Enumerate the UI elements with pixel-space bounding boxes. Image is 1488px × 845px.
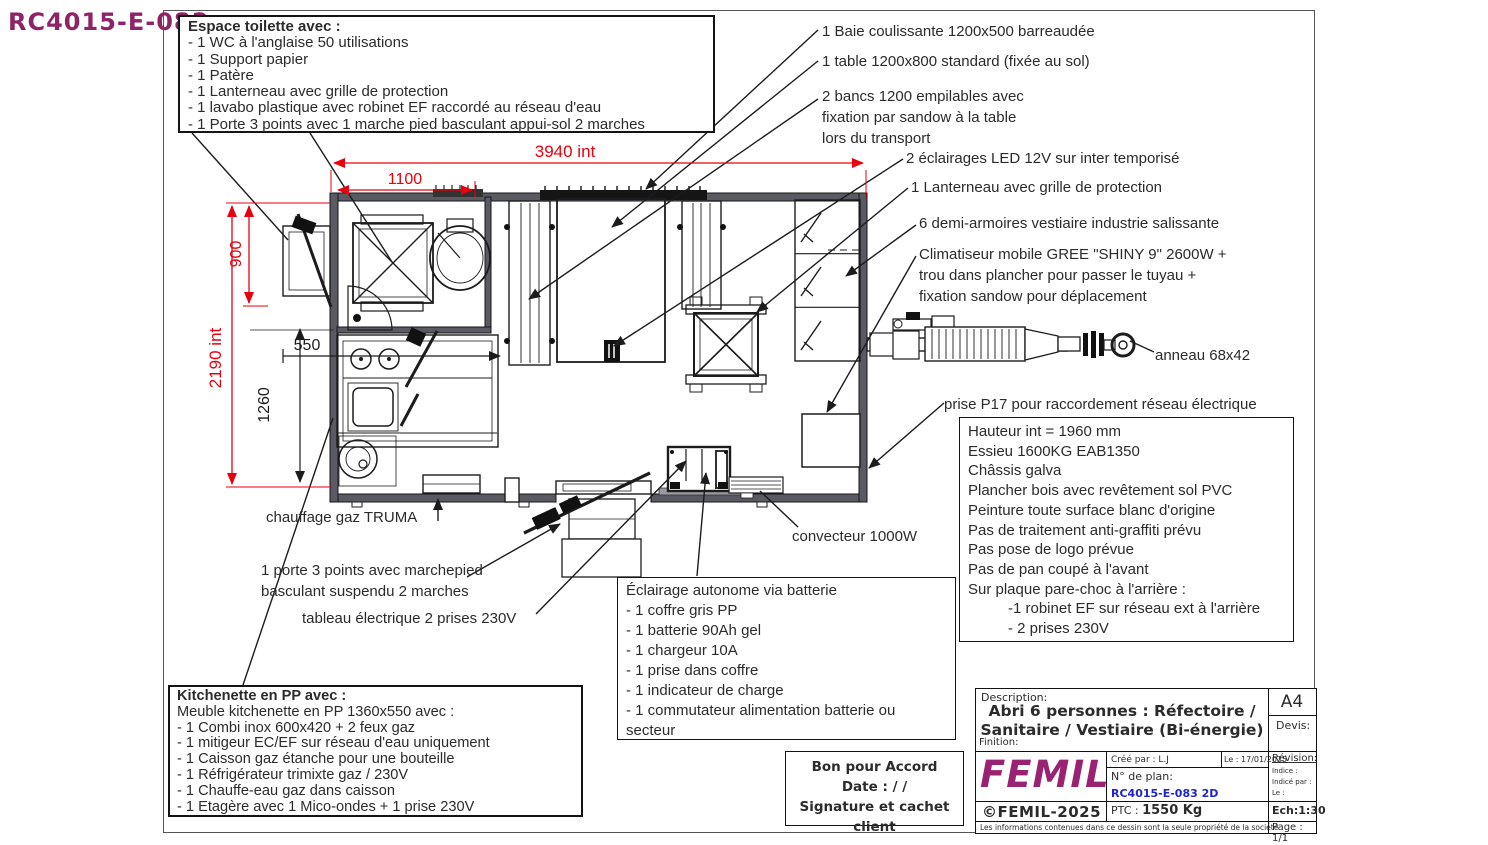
table [557, 199, 665, 362]
toilet-spec-box: Espace toilette avec : - 1 WC à l'anglai… [178, 15, 715, 133]
general-spec-box: Hauteur int = 1960 mm Essieu 1600KG EAB1… [959, 417, 1294, 642]
dim-overall-width: 3940 int [535, 142, 596, 161]
devis-label: Devis: [1276, 719, 1310, 732]
toilet-box-item: - 1 WC à l'anglaise 50 utilisations [188, 35, 705, 51]
callout-bancs: 2 bancs 1200 empilables avec fixation pa… [822, 86, 1024, 149]
ptc-label: PTC : [1111, 804, 1139, 817]
toilet-box-item: - 1 Lanterneau avec grille de protection [188, 84, 705, 100]
callout-lanterneau: 1 Lanterneau avec grille de protection [911, 177, 1162, 198]
dim-toilet-width: 1100 [388, 171, 423, 188]
lockers [795, 200, 860, 361]
kitchenette-box-item: - 1 Réfrigérateur trimixte gaz / 230V [177, 768, 574, 784]
spec-line: Pas de traitement anti-graffiti prévu [968, 521, 1293, 541]
dim-overall-depth: 2190 int [206, 327, 225, 388]
callout-eclairages: 2 éclairages LED 12V sur inter temporisé [906, 148, 1179, 169]
callout-tableau: tableau électrique 2 prises 230V [302, 608, 516, 629]
approval-title: Bon pour Accord [786, 757, 963, 777]
approval-box: Bon pour Accord Date : / / Signature et … [785, 751, 964, 826]
dimensions-black [250, 329, 500, 482]
toilet-box-item: - 1 lavabo plastique avec robinet EF rac… [188, 100, 705, 116]
toilet-box-item: - 1 Patère [188, 68, 705, 84]
spec-line: Hauteur int = 1960 mm [968, 422, 1293, 442]
callout-climatiseur: Climatiseur mobile GREE "SHINY 9" 2600W … [919, 244, 1227, 307]
dimension-labels-black: 550 1260 [256, 337, 320, 423]
dim-toilet-depth: 900 [228, 241, 245, 268]
approval-signature-line: Signature et cachet client [786, 797, 963, 837]
spec-line: Plancher bois avec revêtement sol PVC [968, 481, 1293, 501]
kitchenette-box-item: - 1 Combi inox 600x420 + 2 feux gaz [177, 721, 574, 737]
callout-anneau: anneau 68x42 [1155, 345, 1250, 366]
created-by: Créé par : L.J [1111, 755, 1169, 765]
spec-line: Pas pose de logo prévue [968, 540, 1293, 560]
callout-prise-p17: prise P17 pour raccordement réseau élect… [944, 394, 1257, 415]
dim-kitchen-depth: 550 [294, 337, 321, 354]
finition-label: Finition: [979, 737, 1018, 748]
kitchenette-box-item: - 1 Chauffe-eau gaz dans caisson [177, 784, 574, 800]
spec-line: Châssis galva [968, 461, 1293, 481]
description-text: Abri 6 personnes : Réfectoire / Sanitair… [976, 702, 1268, 740]
spec-line: Essieu 1600KG EAB1350 [968, 442, 1293, 462]
drawing-sheet: RC4015-E-083 [0, 0, 1488, 845]
air-conditioner [802, 414, 860, 467]
spec-line: - 2 prises 230V [968, 619, 1293, 639]
indice-label: Indice : [1272, 767, 1298, 775]
footer-note: Les informations contenues dans ce dessi… [980, 823, 1278, 832]
approval-date-line: Date : / / [786, 777, 963, 797]
spec-line: Peinture toute surface blanc d'origine [968, 501, 1293, 521]
battery-box-item: - 1 commutateur alimentation batterie ou… [626, 701, 947, 741]
kitchenette-spec-box: Kitchenette en PP avec : Meuble kitchene… [168, 685, 583, 817]
callout-baie: 1 Baie coulissante 1200x500 barreaudée [822, 21, 1095, 42]
battery-box-item: - 1 coffre gris PP [626, 601, 947, 621]
dim-kitchen-length: 1260 [256, 387, 273, 423]
battery-lighting-box: Éclairage autonome via batterie - 1 coff… [617, 577, 956, 740]
kitchenette-box-item: - 1 Caisson gaz étanche pour une bouteil… [177, 752, 574, 768]
plan-number-label: N° de plan: [1111, 770, 1173, 783]
callout-chauffage: chauffage gaz TRUMA [266, 507, 417, 528]
toilet-box-item: - 1 Porte 3 points avec 1 marche pied ba… [188, 117, 705, 133]
title-block: Description: Abri 6 personnes : Réfectoi… [975, 688, 1317, 834]
drawbar [867, 312, 1134, 361]
callout-table: 1 table 1200x800 standard (fixée au sol) [822, 51, 1090, 72]
callout-armoires: 6 demi-armoires vestiaire industrie sali… [919, 213, 1219, 234]
callout-porte: 1 porte 3 points avec marchepied bascula… [261, 560, 483, 602]
format-label: A4 [1268, 692, 1316, 712]
toilet-box-item: - 1 Support papier [188, 52, 705, 68]
ptc-value: 1550 Kg [1142, 803, 1202, 818]
bench-1 [504, 201, 555, 365]
battery-box-item: - 1 batterie 90Ah gel [626, 621, 947, 641]
kitchenette-box-item: - 1 mitigeur EC/EF sur réseau d'eau uniq… [177, 736, 574, 752]
kitchenette-box-title: Kitchenette en PP avec : [177, 689, 574, 705]
battery-box-item: - 1 chargeur 10A [626, 641, 947, 661]
femil-logo: FEMIL [980, 753, 1106, 796]
indice-par-label: Indicé par : [1272, 778, 1311, 786]
rooflight [686, 297, 766, 392]
callout-convecteur: convecteur 1000W [792, 526, 917, 547]
exterior-step [283, 214, 331, 307]
toilet-room [348, 215, 490, 330]
revision-label: Révision: [1272, 753, 1317, 764]
le-label: Le : [1272, 789, 1285, 797]
plan-number: RC4015-E-083 2D [1111, 787, 1218, 800]
dimension-labels-red: 3940 int 1100 2190 int 900 [206, 142, 596, 388]
spec-line: -1 robinet EF sur réseau ext à l'arrière [968, 599, 1293, 619]
kitchenette-box-subtitle: Meuble kitchenette en PP 1360x550 avec : [177, 705, 574, 721]
toilet-box-title: Espace toilette avec : [188, 19, 705, 35]
spec-line: Pas de pan coupé à l'avant [968, 560, 1293, 580]
bench-2 [677, 201, 726, 309]
spec-line: Sur plaque pare-choc à l'arrière : [968, 580, 1293, 600]
scale-label: Ech:1:30 [1272, 804, 1326, 817]
ptc-row: PTC : 1550 Kg [1111, 803, 1202, 818]
battery-box-title: Éclairage autonome via batterie [626, 581, 947, 601]
kitchenette-box-item: - 1 Etagère avec 1 Mico-ondes + 1 prise … [177, 800, 574, 816]
walls [330, 193, 867, 502]
kitchenette [337, 327, 498, 486]
copyright: ©FEMIL-2025 [982, 803, 1101, 821]
battery-box-item: - 1 indicateur de charge [626, 681, 947, 701]
battery-box-item: - 1 prise dans coffre [626, 661, 947, 681]
page-label: Page : 1/1 [1272, 822, 1316, 844]
dimensions-red [226, 163, 866, 487]
